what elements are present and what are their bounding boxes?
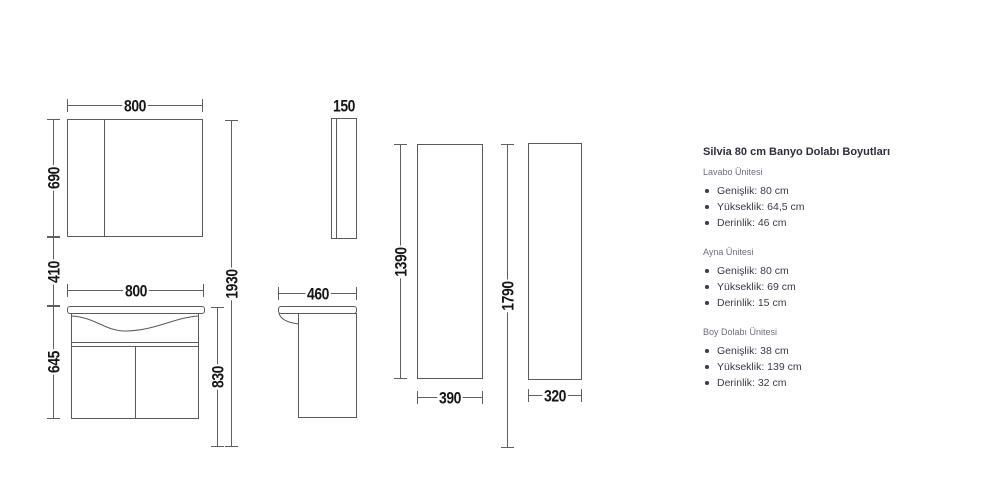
dim-mirror-width-label: 800 — [122, 98, 147, 115]
bullet-icon — [705, 189, 709, 193]
vanity-basin-nose-curve — [277, 312, 301, 328]
spec-item: Yükseklik: 69 cm — [703, 282, 973, 293]
dim-tick — [203, 284, 204, 297]
dim-wall-gap: 410 — [53, 237, 54, 307]
dim-vanity-width-label: 800 — [123, 283, 148, 300]
dim-mirror-depth-label: 150 — [331, 98, 356, 115]
dim-tick — [394, 144, 407, 145]
dim-tick — [278, 287, 279, 300]
dim-tick — [225, 120, 238, 121]
vanity-fascia-bottom-line — [71, 342, 199, 343]
dim-vanity-depth-label: 460 — [305, 286, 330, 303]
dim-tall-top-height: 1790 — [507, 144, 508, 448]
dim-vanity-width: 800 — [67, 290, 204, 291]
dim-tick — [47, 237, 60, 238]
dim-mirror-height: 690 — [53, 119, 54, 237]
vanity-basin-curve — [71, 306, 199, 346]
spec-section-label: Ayna Ünitesi — [703, 247, 973, 257]
dim-tall-height-label: 1390 — [393, 245, 410, 278]
dim-vanity-top-height-label: 830 — [210, 364, 227, 389]
dim-total-height-label: 1930 — [224, 267, 241, 300]
spec-section-label: Lavabo Ünitesi — [703, 167, 973, 177]
dim-tick — [211, 307, 224, 308]
spec-item: Yükseklik: 139 cm — [703, 362, 973, 373]
dim-total-height: 1930 — [231, 120, 232, 447]
bullet-icon — [705, 365, 709, 369]
dim-vanity-height: 645 — [53, 305, 54, 419]
spec-item: Genişlik: 80 cm — [703, 186, 973, 197]
spec-list: Genişlik: 80 cm Yükseklik: 64,5 cm Derin… — [703, 186, 973, 229]
tall-cabinet-side — [528, 143, 582, 380]
bullet-icon — [705, 381, 709, 385]
spec-item: Yükseklik: 64,5 cm — [703, 202, 973, 213]
dim-tall-width-label: 390 — [437, 390, 462, 407]
dim-tick — [67, 99, 68, 112]
mirror-cabinet-front — [67, 119, 203, 237]
mirror-cabinet-side — [331, 118, 357, 239]
spec-item: Genişlik: 38 cm — [703, 346, 973, 357]
dim-tick — [482, 391, 483, 404]
dim-tall-width: 390 — [417, 397, 483, 398]
dim-vanity-depth: 460 — [278, 293, 357, 294]
bullet-icon — [705, 221, 709, 225]
mirror-door-divider-line — [104, 119, 105, 237]
dim-tick — [394, 378, 407, 379]
dim-tall-height: 1390 — [400, 144, 401, 379]
spec-list: Genişlik: 80 cm Yükseklik: 69 cm Derinli… — [703, 266, 973, 309]
dim-tick — [501, 447, 514, 448]
dim-tall-depth-label: 320 — [542, 388, 567, 405]
spec-item: Genişlik: 80 cm — [703, 266, 973, 277]
bullet-icon — [705, 269, 709, 273]
dim-tick — [528, 389, 529, 402]
dim-tick — [581, 389, 582, 402]
spec-section-label: Boy Dolabı Ünitesi — [703, 327, 973, 337]
spec-item: Derinlik: 46 cm — [703, 218, 973, 229]
spec-section-lavabo: Lavabo Ünitesi Genişlik: 80 cm Yükseklik… — [703, 167, 973, 229]
dim-mirror-depth: 150 — [332, 105, 356, 106]
vanity-body-side — [298, 313, 357, 418]
mirror-glass-line — [336, 118, 337, 239]
dim-tall-top-height-label: 1790 — [500, 280, 517, 313]
dim-tick — [225, 446, 238, 447]
specs-title: Silvia 80 cm Banyo Dolabı Boyutları — [703, 146, 973, 159]
dim-tick — [47, 305, 60, 306]
bullet-icon — [705, 301, 709, 305]
dim-tick — [211, 446, 224, 447]
vanity-door-divider-line — [135, 346, 136, 419]
bullet-icon — [705, 205, 709, 209]
spec-item: Derinlik: 15 cm — [703, 298, 973, 309]
dim-tick — [417, 391, 418, 404]
dim-tick — [47, 119, 60, 120]
dim-mirror-height-label: 690 — [46, 165, 63, 190]
dim-tick — [67, 284, 68, 297]
dim-vanity-top-height: 830 — [217, 307, 218, 447]
dim-tick — [501, 144, 514, 145]
bullet-icon — [705, 285, 709, 289]
dim-tick — [202, 99, 203, 112]
bullet-icon — [705, 349, 709, 353]
dim-tick — [47, 418, 60, 419]
spec-section-boy-dolabi: Boy Dolabı Ünitesi Genişlik: 38 cm Yükse… — [703, 327, 973, 389]
spec-item: Derinlik: 32 cm — [703, 378, 973, 389]
spec-list: Genişlik: 38 cm Yükseklik: 139 cm Derinl… — [703, 346, 973, 389]
dim-tall-depth: 320 — [528, 395, 582, 396]
spec-section-ayna: Ayna Ünitesi Genişlik: 80 cm Yükseklik: … — [703, 247, 973, 309]
tall-cabinet-front — [417, 144, 483, 379]
dim-wall-gap-label: 410 — [46, 259, 63, 284]
specs-panel: Silvia 80 cm Banyo Dolabı Boyutları Lava… — [703, 146, 973, 407]
dim-mirror-width: 800 — [67, 105, 203, 106]
dim-tick — [356, 287, 357, 300]
technical-drawing-page: 800 690 410 800 645 830 19 — [0, 0, 987, 491]
dim-vanity-height-label: 645 — [46, 349, 63, 374]
